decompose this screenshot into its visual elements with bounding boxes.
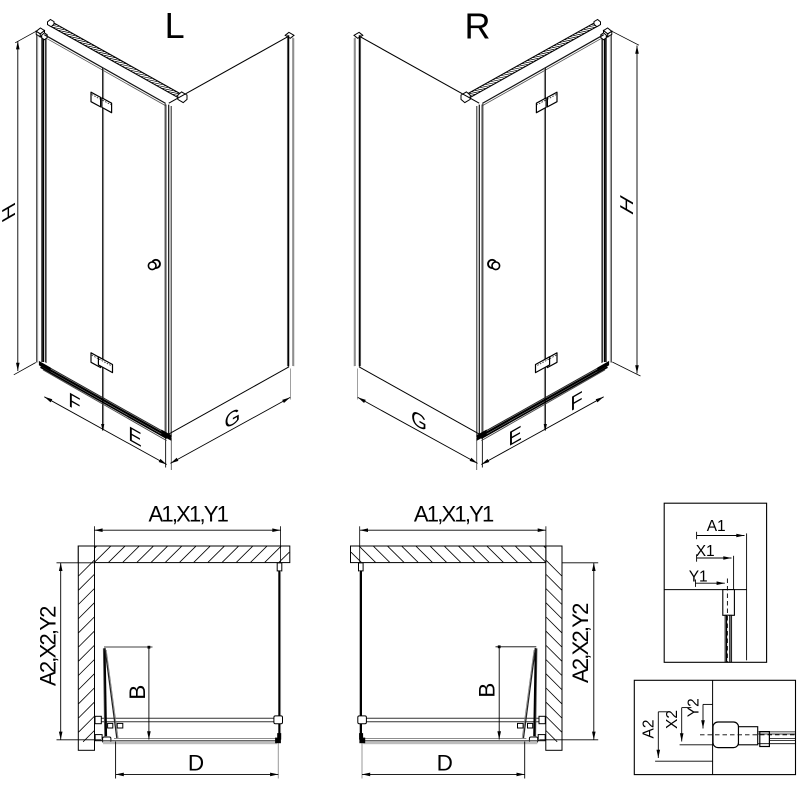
svg-text:A1: A1 [707,518,726,535]
svg-text:B: B [125,685,150,700]
svg-text:A2: A2 [641,720,658,739]
svg-text:A1,X1,Y1: A1,X1,Y1 [414,502,494,527]
svg-text:Y1: Y1 [689,568,708,585]
svg-text:D: D [188,751,204,776]
svg-text:A2,X2,Y2: A2,X2,Y2 [36,606,61,686]
svg-text:B: B [474,683,499,698]
svg-text:D: D [437,751,453,776]
svg-text:A2,X2,Y2: A2,X2,Y2 [568,603,593,683]
svg-text:L: L [165,5,185,46]
svg-text:X1: X1 [696,543,715,560]
svg-text:Y2: Y2 [685,698,702,717]
svg-text:A1,X1,Y1: A1,X1,Y1 [149,502,229,527]
svg-text:R: R [465,6,491,47]
svg-text:X2: X2 [664,710,681,729]
